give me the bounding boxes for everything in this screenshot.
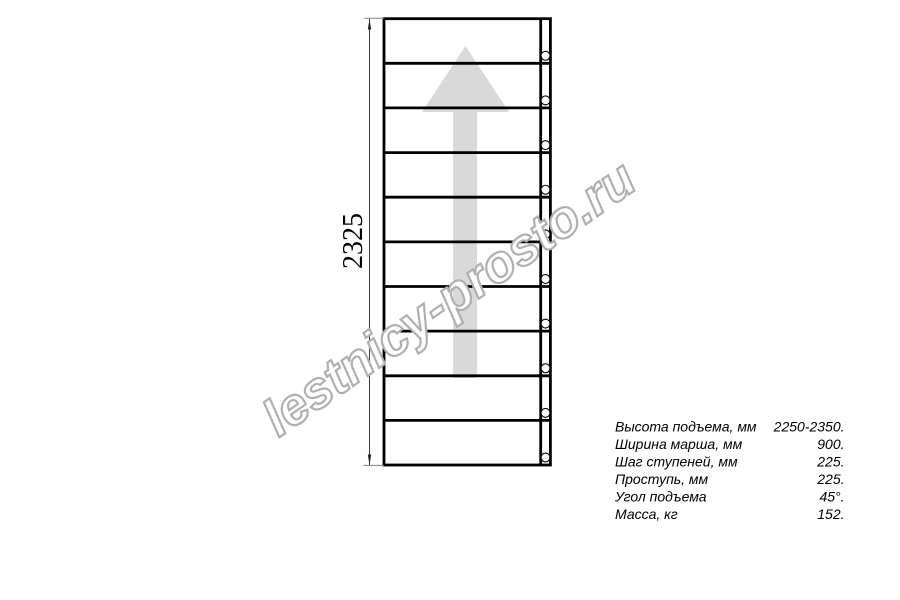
svg-text:Шаг ступеней, мм: Шаг ступеней, мм bbox=[615, 454, 738, 470]
svg-text:Масса, кг: Масса, кг bbox=[615, 506, 678, 522]
svg-text:900.: 900. bbox=[817, 436, 844, 452]
svg-text:Угол подъема: Угол подъема bbox=[614, 489, 707, 505]
svg-text:2325: 2325 bbox=[338, 213, 369, 269]
svg-text:2250-2350.: 2250-2350. bbox=[773, 419, 845, 435]
svg-text:225.: 225. bbox=[816, 471, 844, 487]
svg-text:45°.: 45°. bbox=[819, 489, 844, 505]
svg-text:152.: 152. bbox=[817, 506, 844, 522]
svg-text:Ширина марша, мм: Ширина марша, мм bbox=[615, 436, 743, 452]
svg-text:Высота подъема, мм: Высота подъема, мм bbox=[615, 419, 757, 435]
svg-text:Проступь, мм: Проступь, мм bbox=[615, 471, 709, 487]
svg-text:225.: 225. bbox=[816, 454, 844, 470]
